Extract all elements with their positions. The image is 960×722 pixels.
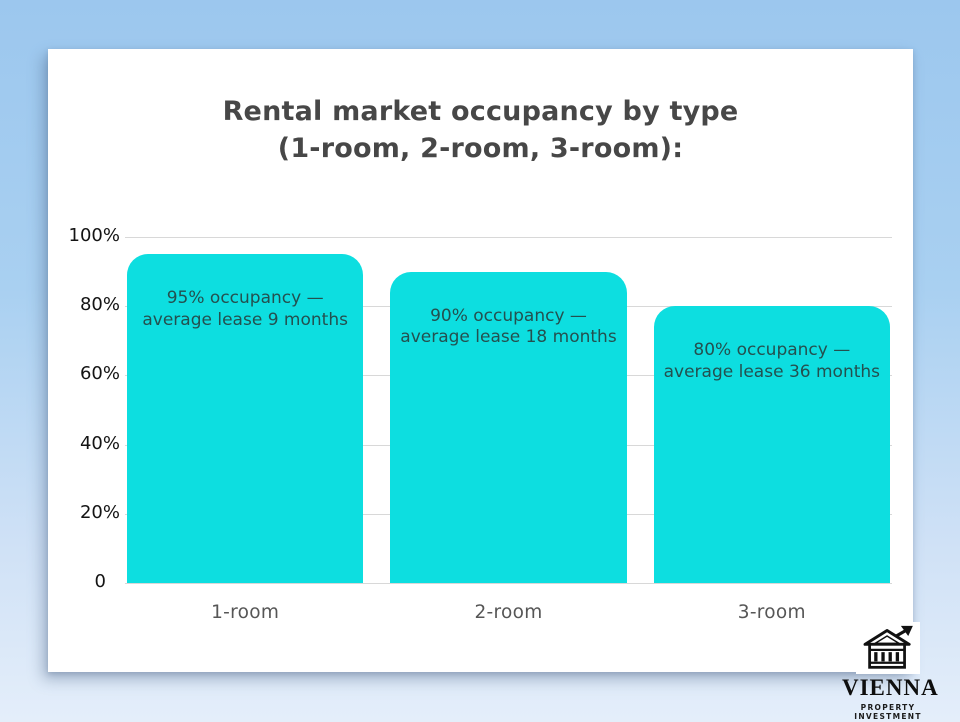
- chart-title-line1: Rental market occupancy by type: [48, 93, 913, 130]
- bank-building-arrow-icon: [856, 622, 920, 674]
- y-tick-label: 100%: [50, 225, 120, 246]
- y-tick-label: 60%: [50, 363, 120, 384]
- gridline: [125, 583, 892, 584]
- y-tick-label: 20%: [50, 502, 120, 523]
- x-axis: 1-room2-room3-room: [127, 602, 890, 628]
- plot-area: 95% occupancy —average lease 9 months90%…: [127, 237, 890, 583]
- bar-2-room: 90% occupancy —average lease 18 months: [390, 272, 626, 583]
- gridline: [125, 237, 892, 238]
- x-tick-label: 1-room: [127, 602, 363, 623]
- y-tick-label: 0: [36, 571, 106, 592]
- chart-title-line2: (1-room, 2-room, 3-room):: [48, 130, 913, 167]
- bar-1-room: 95% occupancy —average lease 9 months: [127, 254, 363, 583]
- y-tick-label: 80%: [50, 294, 120, 315]
- logo-subtitle: PROPERTY INVESTMENT: [842, 703, 934, 721]
- bar-3-room: 80% occupancy —average lease 36 months: [654, 306, 890, 583]
- brand-logo: VIENNA PROPERTY INVESTMENT: [842, 622, 934, 721]
- bar-annotation: 80% occupancy —average lease 36 months: [654, 306, 890, 383]
- x-tick-label: 3-room: [654, 602, 890, 623]
- bar-annotation: 90% occupancy —average lease 18 months: [390, 272, 626, 349]
- y-axis: 100%80%60%40%20%0: [50, 237, 120, 583]
- chart-title: Rental market occupancy by type (1-room,…: [48, 93, 913, 167]
- bar-annotation: 95% occupancy —average lease 9 months: [127, 254, 363, 331]
- x-tick-label: 2-room: [390, 602, 626, 623]
- logo-name: VIENNA: [842, 675, 934, 701]
- chart-card: Rental market occupancy by type (1-room,…: [48, 49, 913, 672]
- y-tick-label: 40%: [50, 433, 120, 454]
